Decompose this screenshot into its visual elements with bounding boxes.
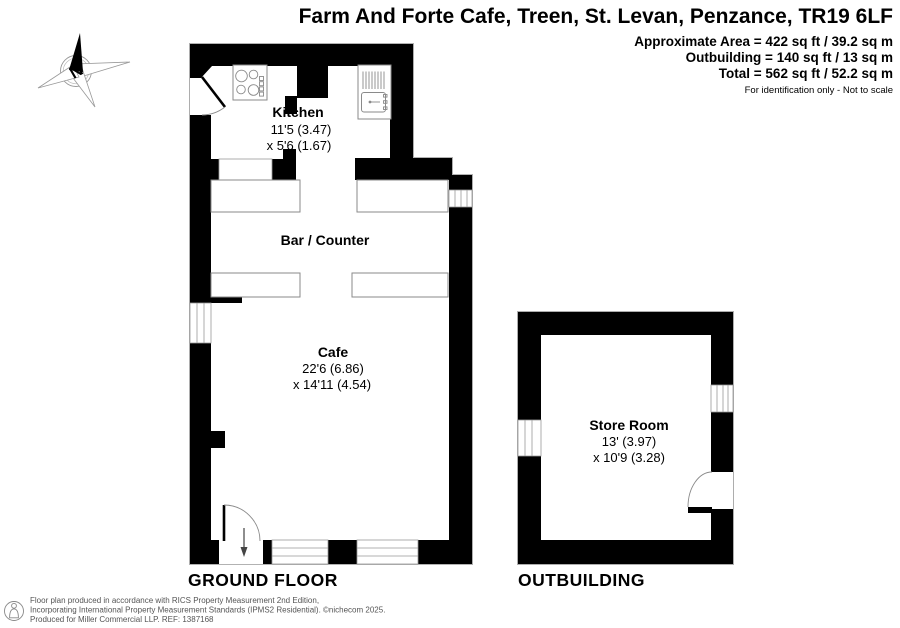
window-bottom-left <box>272 540 328 564</box>
store-room-dim1: 13' (3.97) <box>602 434 657 449</box>
store-room-dim2: x 10'9 (3.28) <box>593 450 665 465</box>
outbuilding-window-left <box>518 420 541 456</box>
footer-line3: Produced for Miller Commercial LLP. REF:… <box>30 615 214 624</box>
outbuilding-label: OUTBUILDING <box>518 570 645 590</box>
nichecom-logo-icon <box>5 602 24 621</box>
floorplan-drawing: Farm And Forte Cafe, Treen, St. Levan, P… <box>0 0 900 628</box>
cafe-dim2: x 14'11 (4.54) <box>293 377 371 392</box>
footer-line2: Incorporating International Property Mea… <box>30 606 385 615</box>
outbuilding-area: Outbuilding = 140 sq ft / 13 sq m <box>686 50 893 65</box>
kitchen-dim2: x 5'6 (1.67) <box>267 138 332 153</box>
sink-icon <box>358 65 391 119</box>
window-bottom-right <box>357 540 418 564</box>
window-left <box>190 303 211 343</box>
kitchen-opening <box>219 159 272 180</box>
store-room-name: Store Room <box>589 417 668 433</box>
area-summary: Approximate Area = 422 sq ft / 39.2 sq m… <box>634 34 893 96</box>
scale-disclaimer: For identification only - Not to scale <box>745 85 893 96</box>
store-room-label: Store Room 13' (3.97) x 10'9 (3.28) <box>589 417 668 465</box>
window-right <box>449 190 472 207</box>
outbuilding-door <box>688 472 712 513</box>
bar-counter-label: Bar / Counter <box>281 232 370 248</box>
outbuilding-plan: Store Room 13' (3.97) x 10'9 (3.28) OUTB… <box>518 312 734 591</box>
entrance-door <box>224 505 260 541</box>
approximate-area: Approximate Area = 422 sq ft / 39.2 sq m <box>634 34 893 49</box>
outbuilding-window-right <box>711 385 733 412</box>
cafe-name: Cafe <box>318 344 349 360</box>
total-area: Total = 562 sq ft / 52.2 sq m <box>719 66 893 81</box>
entry-arrow-icon <box>241 528 248 557</box>
kitchen-dim1: 11'5 (3.47) <box>271 122 332 137</box>
cafe-label: Cafe 22'6 (6.86) x 14'11 (4.54) <box>293 344 371 392</box>
kitchen-label: Kitchen 11'5 (3.47) x 5'6 (1.67) <box>267 104 332 153</box>
page-title: Farm And Forte Cafe, Treen, St. Levan, P… <box>299 5 894 28</box>
kitchen-name: Kitchen <box>272 104 323 120</box>
compass-rose-icon: N <box>38 33 130 107</box>
footer: Floor plan produced in accordance with R… <box>5 596 386 624</box>
cafe-dim1: 22'6 (6.86) <box>302 361 364 376</box>
floorplan-page: Farm And Forte Cafe, Treen, St. Levan, P… <box>0 0 900 628</box>
kitchen-door <box>202 77 225 115</box>
ground-floor-plan: Kitchen 11'5 (3.47) x 5'6 (1.67) Bar / C… <box>188 44 473 591</box>
footer-line1: Floor plan produced in accordance with R… <box>30 596 319 605</box>
ground-floor-label: GROUND FLOOR <box>188 570 338 590</box>
hob-icon <box>233 65 267 100</box>
